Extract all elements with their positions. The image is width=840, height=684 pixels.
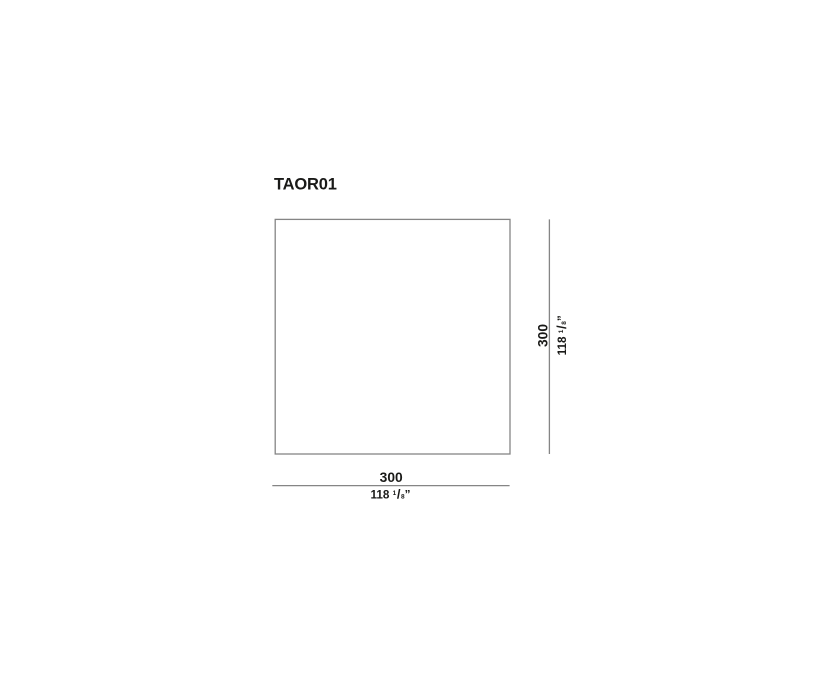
svg-text:300: 300 [535,324,550,347]
svg-text:118 1/8”: 118 1/8” [370,486,410,501]
svg-text:TAOR01: TAOR01 [274,176,337,194]
svg-text:300: 300 [380,470,403,485]
svg-text:118 1/8”: 118 1/8” [554,315,569,355]
